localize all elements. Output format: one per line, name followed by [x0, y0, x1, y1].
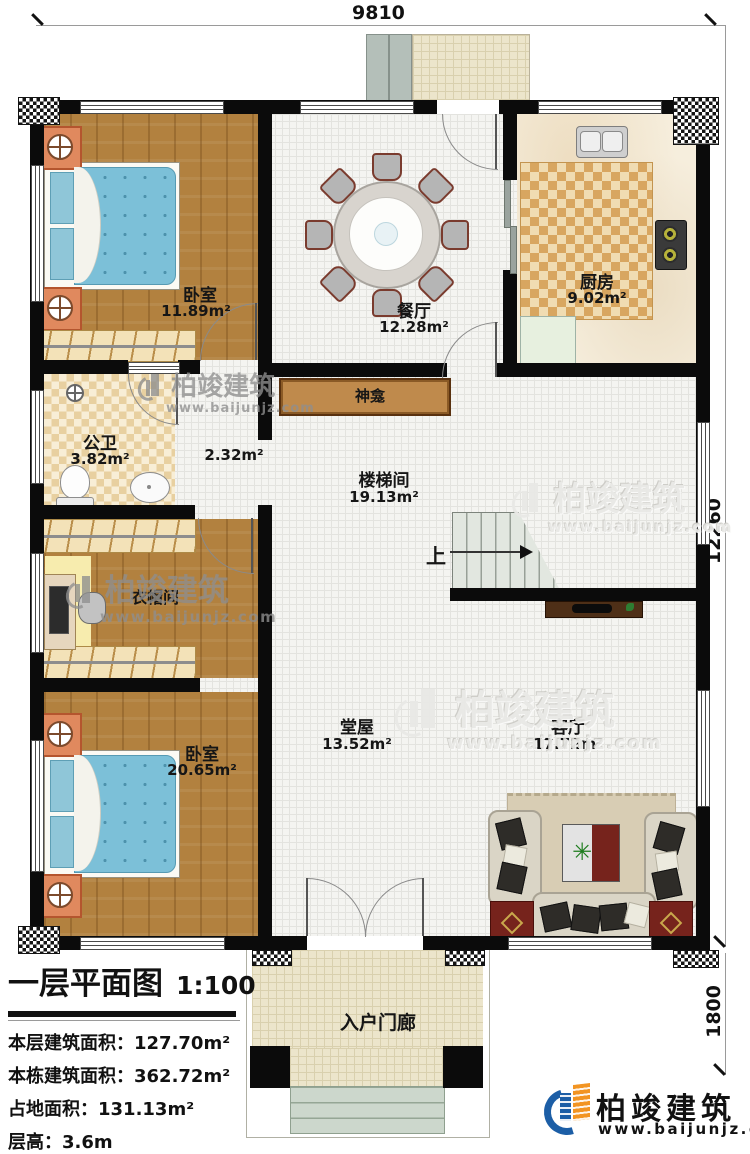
wardrobe — [40, 519, 196, 553]
floor-plan: 9810 12260 1800 — [0, 0, 750, 1154]
wardrobe — [40, 646, 196, 679]
door-opening-porch — [307, 936, 423, 950]
watermark-name: 柏竣建筑 — [171, 372, 275, 402]
logo-building-icon — [573, 1083, 590, 1121]
room-label-porch: 入户门廊 — [340, 1008, 416, 1035]
pillow — [50, 816, 74, 868]
door-opening-backdoor — [437, 100, 499, 114]
stairs-up-label: 上 — [426, 540, 446, 569]
burner-icon — [662, 226, 678, 242]
room-area-bedroom2: 20.65m² — [167, 761, 237, 779]
sofa-cushion — [570, 904, 601, 934]
porch-floor-lower — [290, 1048, 443, 1088]
pier-bottom-left — [18, 926, 60, 954]
sofa-cushion — [496, 862, 527, 895]
room-area-kitchen: 9.02m² — [567, 289, 626, 307]
window-living-right — [697, 690, 710, 807]
brand-logo-icon — [138, 374, 162, 402]
title-row-value: 131.13m² — [98, 1099, 194, 1120]
medallion-icon — [501, 912, 524, 935]
wall-under-stairs — [450, 588, 696, 601]
dimension-tick — [704, 13, 717, 26]
wall-kitchen-south — [517, 363, 696, 377]
title-row-label: 占地面积： — [8, 1099, 98, 1120]
nightstand — [40, 713, 82, 757]
room-area-hallway: 2.32m² — [204, 446, 263, 464]
watermark-url: www.baijunjz.com — [100, 608, 277, 626]
dimension-line-top — [36, 25, 726, 26]
drawing-scale: 1:100 — [176, 971, 256, 1000]
window-bedroom1-top — [80, 101, 224, 114]
window-cloakroom-left — [31, 553, 44, 653]
nightstand — [40, 287, 82, 331]
title-row: 层高：3.6m — [8, 1128, 268, 1154]
window-living-bottom — [508, 937, 652, 950]
pendant-light-icon — [66, 384, 84, 402]
pier-porch-right — [445, 950, 485, 966]
title-block: 一层平面图 1:100 本层建筑面积：127.70m² 本栋建筑面积：362.7… — [8, 958, 268, 1154]
kitchen-sliding-door — [510, 226, 517, 274]
pier-top-right — [673, 97, 719, 145]
dimension-tick — [713, 1063, 726, 1076]
dimension-tick — [713, 935, 726, 948]
chair-icon — [305, 220, 333, 250]
window-kitchen-top — [538, 101, 662, 114]
burner-icon — [662, 247, 678, 263]
toilet — [60, 465, 90, 499]
window-bedroom2-bottom — [80, 937, 225, 950]
watermark-url: www.baijunjz.com — [447, 733, 663, 754]
sofa-cushion — [651, 868, 682, 901]
dimension-width-label: 9810 — [352, 2, 405, 24]
company-website: www.baijunjz.com — [598, 1120, 750, 1138]
fridge — [520, 316, 576, 364]
title-row-label: 层高： — [8, 1132, 62, 1153]
chair-icon — [372, 153, 402, 181]
dimension-tick — [31, 13, 44, 26]
watermark-url: www.baijunjz.com — [548, 518, 733, 536]
dining-stairhall-door-leaf — [495, 322, 497, 377]
dimension-porch-label: 1800 — [703, 985, 725, 1038]
chimney — [366, 34, 412, 106]
stairs-direction-arrow — [450, 551, 522, 553]
kitchen-sink-basin — [602, 131, 623, 152]
plant-icon: ✳ — [568, 838, 596, 866]
room-area-stairhall: 19.13m² — [349, 488, 419, 506]
room-area-dining: 12.28m² — [379, 318, 449, 336]
brand-logo-icon — [66, 576, 94, 609]
backdoor-leaf — [495, 114, 497, 169]
wall-bathroom-south — [37, 505, 195, 519]
stove — [655, 220, 687, 270]
brand-logo-icon — [395, 689, 441, 737]
title-row: 本层建筑面积：127.70m² — [8, 1029, 268, 1055]
entry-door-right-leaf — [422, 878, 424, 936]
bedroom1-door-leaf — [255, 303, 257, 360]
pier-top-left — [18, 97, 60, 125]
kitchen-sliding-door — [504, 180, 511, 228]
title-row-value: 3.6m — [62, 1132, 113, 1153]
company-logo-icon — [544, 1084, 592, 1136]
title-row: 占地面积：131.13m² — [8, 1095, 268, 1121]
dimension-line-porch — [725, 953, 726, 1075]
logo-building-icon — [560, 1093, 571, 1121]
watermark-name: 柏竣建筑 — [554, 479, 686, 518]
watermark: 柏竣建筑 www.baijunjz.com — [395, 678, 663, 754]
sofa-cushion — [653, 821, 686, 855]
tv — [572, 604, 612, 613]
title-row-value: 362.72m² — [134, 1066, 230, 1087]
room-area-bedroom1: 11.89m² — [161, 302, 231, 320]
stairs-arrowhead-icon — [520, 545, 533, 559]
title-row: 本栋建筑面积：362.72m² — [8, 1062, 268, 1088]
title-row-label: 本栋建筑面积： — [8, 1066, 134, 1087]
lamp-icon — [47, 295, 73, 321]
wall-kitchen-west-b — [503, 270, 517, 377]
sofa — [488, 810, 542, 906]
watermark-name: 柏竣建筑 — [105, 573, 229, 609]
window-bathroom-left — [31, 390, 44, 484]
room-area-bathroom: 3.82m² — [70, 450, 129, 468]
nightstand — [40, 874, 82, 918]
brand-logo-icon — [512, 483, 542, 519]
window-dining-top — [300, 101, 414, 114]
title-row-value: 127.70m² — [134, 1033, 230, 1054]
watermark: 柏竣建筑 www.baijunjz.com — [512, 472, 733, 536]
pillow — [50, 172, 74, 224]
porch-steps — [290, 1086, 445, 1134]
chair-icon — [441, 220, 469, 250]
title-row-label: 本层建筑面积： — [8, 1033, 134, 1054]
wall-cloakroom-south — [37, 678, 200, 692]
drawing-title: 一层平面图 — [8, 966, 163, 1002]
kitchen-sink-basin — [580, 131, 601, 152]
window-bedroom1-left — [31, 165, 44, 302]
porch-pier-right — [443, 1046, 483, 1088]
pier-bottom-right — [673, 950, 719, 968]
window-bedroom2-left — [31, 740, 44, 872]
watermark: 柏竣建筑 www.baijunjz.com — [138, 366, 315, 416]
entry-door-left-leaf — [306, 878, 308, 936]
shrine-label: 神龛 — [355, 385, 385, 406]
back-porch-landing — [412, 34, 530, 106]
lamp-icon — [47, 134, 73, 160]
lamp-icon — [47, 721, 73, 747]
medallion-icon — [660, 912, 683, 935]
title-rule-thick — [8, 1011, 236, 1017]
lazy-susan — [374, 222, 398, 246]
watermark-name: 柏竣建筑 — [455, 688, 615, 734]
sink-drain — [147, 485, 151, 489]
company-logo: 柏竣建筑 www.baijunjz.com — [544, 1080, 744, 1140]
pillow — [50, 228, 74, 280]
sofa-cushion — [540, 901, 573, 932]
wall-kitchen-west-a — [503, 114, 517, 180]
pillow — [50, 760, 74, 812]
watermark-url: www.baijunjz.com — [166, 401, 315, 416]
lamp-icon — [47, 882, 73, 908]
watermark: 柏竣建筑 www.baijunjz.com — [66, 565, 277, 626]
wardrobe — [40, 330, 196, 362]
title-rule-thin — [8, 1020, 240, 1021]
wall-bedroom1-south-a — [37, 360, 128, 374]
nightstand — [40, 126, 82, 170]
plant-icon — [626, 603, 634, 611]
room-area-mainhall: 13.52m² — [322, 735, 392, 753]
